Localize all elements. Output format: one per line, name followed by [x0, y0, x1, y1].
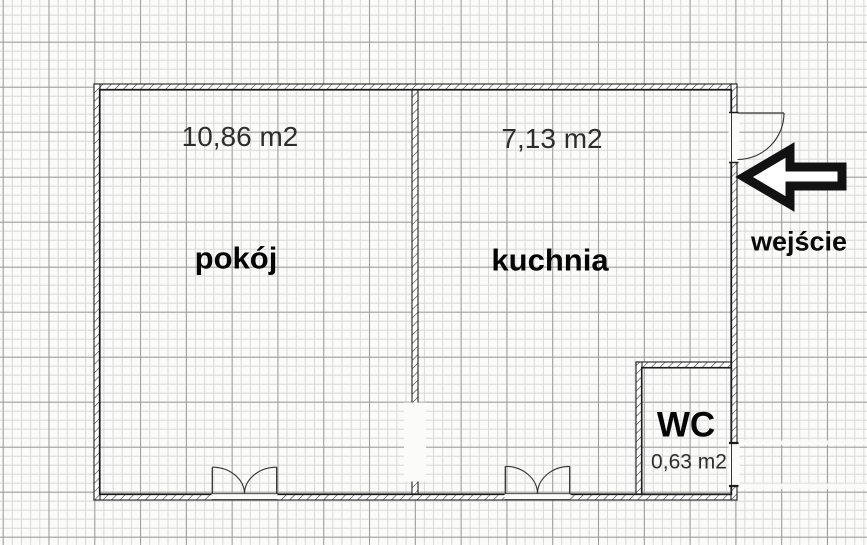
floor-plan: 10,86 m2 pokój 7,13 m2 kuchnia WC 0,63 m…	[0, 0, 867, 545]
wc-door	[729, 443, 740, 486]
floor-plan-drawing	[0, 0, 867, 545]
pokoj-area-label: 10,86 m2	[182, 123, 299, 151]
wall-partition-lower	[412, 481, 418, 494]
partition-opening	[404, 403, 426, 482]
eraser-streaks	[738, 441, 867, 490]
wall-partition-upper	[412, 90, 418, 403]
pokoj-window	[212, 467, 278, 500]
wc-name-label: WC	[657, 408, 715, 443]
kuchnia-window	[505, 466, 571, 500]
entrance-arrow-icon	[744, 150, 842, 204]
entrance-label: wejście	[751, 229, 847, 256]
wc-area-label: 0,63 m2	[651, 452, 727, 473]
kuchnia-name-label: kuchnia	[491, 245, 608, 276]
pokoj-name-label: pokój	[195, 243, 278, 274]
kuchnia-area-label: 7,13 m2	[501, 125, 602, 153]
